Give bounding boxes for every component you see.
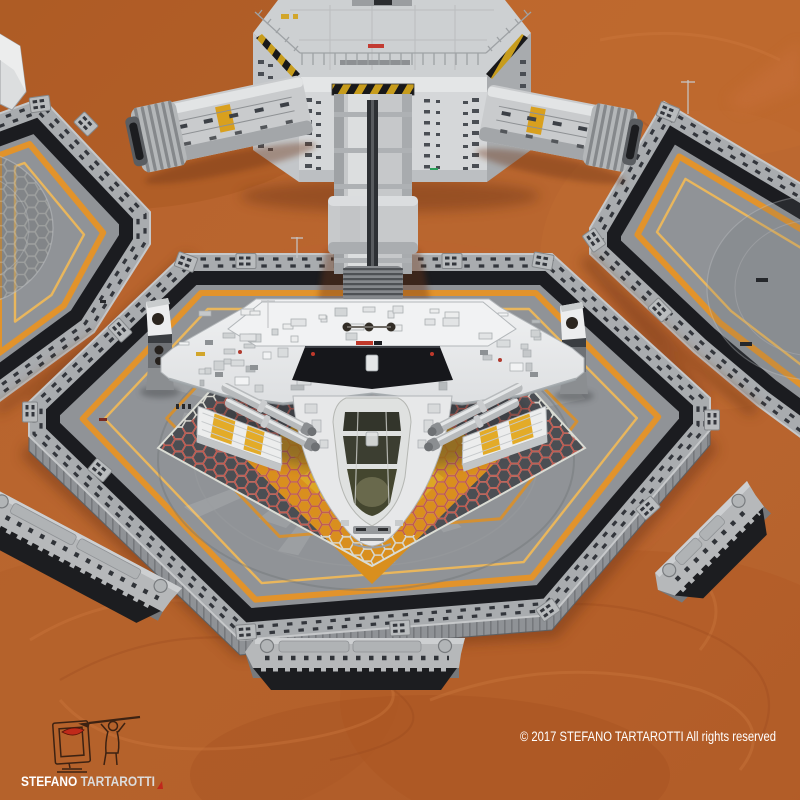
svg-text:STEFANO TARTAROTTI: STEFANO TARTAROTTI <box>21 774 155 789</box>
svg-text:© 2017 STEFANO TARTAROTTI All: © 2017 STEFANO TARTAROTTI All rights res… <box>520 729 776 745</box>
